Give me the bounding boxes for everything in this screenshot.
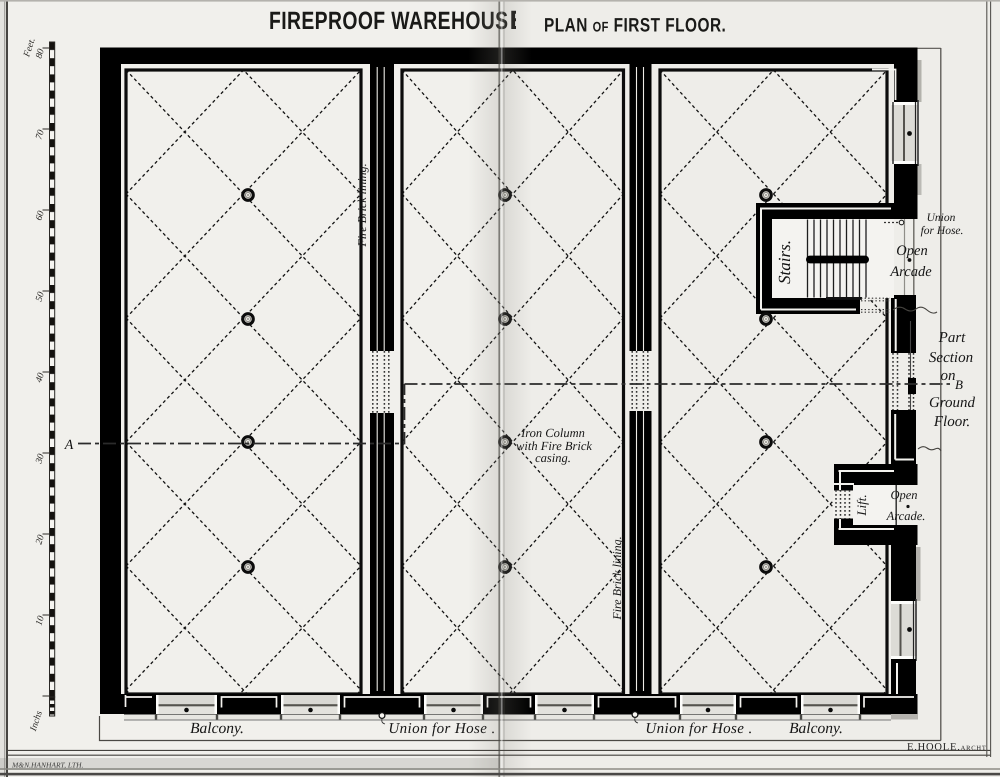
svg-text:Stairs.: Stairs. — [775, 240, 794, 284]
svg-text:PLAN OF FIRST FLOOR.: PLAN OF FIRST FLOOR. — [544, 15, 726, 37]
svg-text:Arcade.: Arcade. — [886, 509, 926, 523]
svg-text:casing.: casing. — [535, 451, 571, 465]
svg-text:for Hose.: for Hose. — [921, 225, 964, 237]
svg-text:Union: Union — [927, 212, 956, 224]
svg-text:Lift.: Lift. — [854, 494, 869, 516]
svg-text:Arcade: Arcade — [889, 264, 932, 280]
svg-text:A: A — [64, 438, 74, 453]
svg-text:Floor.: Floor. — [933, 414, 970, 430]
svg-text:Balcony.: Balcony. — [789, 720, 843, 737]
svg-text:Balcony.: Balcony. — [190, 720, 244, 737]
svg-text:B: B — [955, 377, 963, 392]
svg-text:Section: Section — [929, 350, 973, 366]
svg-text:Ground: Ground — [929, 395, 976, 411]
svg-text:on: on — [941, 368, 956, 384]
svg-text:Open: Open — [896, 243, 927, 259]
svg-text:Part: Part — [938, 330, 967, 346]
svg-text:Union for Hose .: Union for Hose . — [645, 721, 752, 737]
svg-text:Fire Brick lining.: Fire Brick lining. — [610, 536, 624, 620]
svg-text:Open: Open — [890, 488, 917, 502]
svg-text:Fire Brick lining.: Fire Brick lining. — [355, 163, 369, 247]
